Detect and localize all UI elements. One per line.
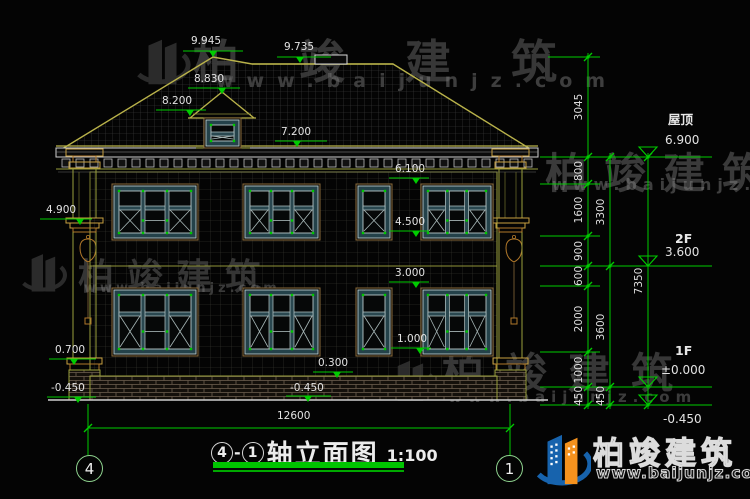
- dimension-value: 3600: [596, 314, 606, 341]
- title-underline-thick: [213, 462, 404, 468]
- elevation-value: 4.900: [46, 205, 76, 216]
- dimension-value: 900: [574, 241, 584, 261]
- title-underline-thin: [213, 470, 404, 472]
- brand-logo-icon: [533, 424, 591, 494]
- grid-bubble-1: 1: [496, 455, 523, 482]
- grid-bubble-label: 4: [85, 460, 95, 478]
- elevation-value: 9.735: [284, 42, 314, 53]
- floor-label: 2F: [675, 231, 692, 246]
- level-value: 3.600: [665, 245, 699, 259]
- dimension-value: 3045: [574, 94, 584, 121]
- dimension-value: 3300: [596, 199, 606, 226]
- elevation-value: 9.945: [191, 36, 221, 47]
- dimension-value: 1000: [574, 357, 584, 384]
- elevation-value: 6.100: [395, 164, 425, 175]
- grid-bubble-4: 4: [76, 455, 103, 482]
- dimension-labels: 9.9459.7358.8308.2007.2006.1004.5003.000…: [0, 0, 750, 499]
- floor-label: 屋顶: [668, 109, 693, 128]
- dimension-value: 800: [574, 161, 584, 181]
- elevation-value: 1.000: [397, 334, 427, 345]
- overall-dimension: 12600: [277, 411, 310, 422]
- elevation-value: 0.300: [318, 358, 348, 369]
- cad-elevation-sheet: 柏竣建筑 www.baijunjz.com 柏竣建筑 www.baijunjz.…: [0, 0, 750, 499]
- elevation-value: 8.830: [194, 74, 224, 85]
- elevation-value: 7.200: [281, 127, 311, 138]
- floor-label: 1F: [675, 343, 692, 358]
- elevation-value: 4.500: [395, 217, 425, 228]
- elevation-value: 3.000: [395, 268, 425, 279]
- dimension-value: 450: [574, 386, 584, 406]
- elevation-value: 8.200: [162, 96, 192, 107]
- dimension-value: 450: [596, 386, 606, 406]
- dimension-value: 7350: [634, 268, 644, 295]
- title-axis-start: 4: [211, 442, 233, 464]
- level-value: -0.450: [663, 412, 702, 426]
- brand-logo-url: www.baijunjz.com: [596, 464, 750, 482]
- title-separator: -: [234, 443, 241, 462]
- title-axis-end: 1: [242, 442, 264, 464]
- level-value: ±0.000: [661, 363, 705, 377]
- dimension-value: 1600: [574, 197, 584, 224]
- dimension-value: 600: [574, 266, 584, 286]
- elevation-value: -0.450: [290, 383, 324, 394]
- grid-bubble-label: 1: [505, 460, 515, 478]
- elevation-value: 0.700: [55, 345, 85, 356]
- level-value: 6.900: [665, 133, 699, 147]
- dimension-value: 2000: [574, 306, 584, 333]
- elevation-value: -0.450: [51, 383, 85, 394]
